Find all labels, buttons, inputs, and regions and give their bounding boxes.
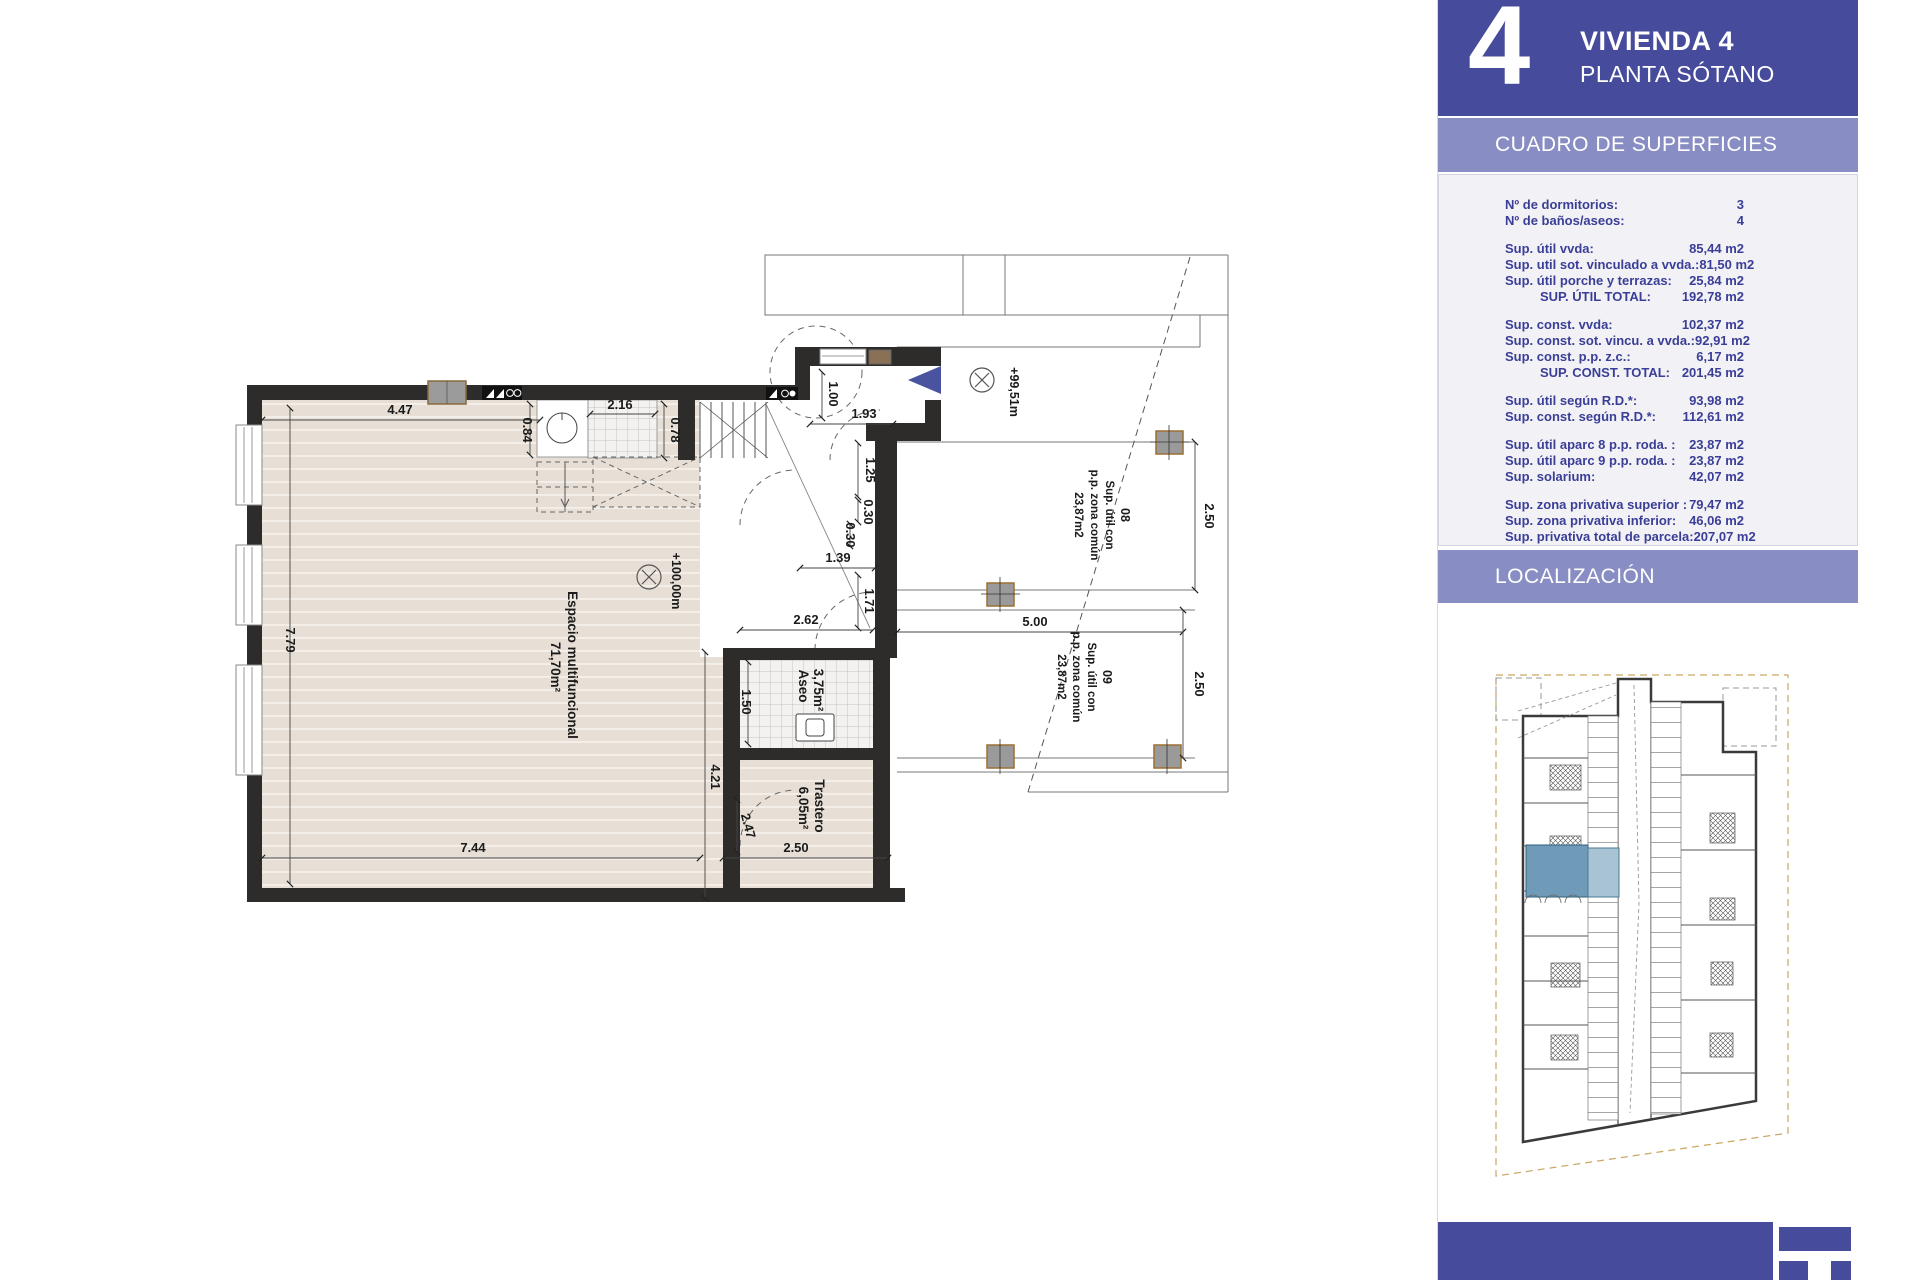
table-row: Sup. const. según R.D.*:112,61 m2: [1505, 409, 1744, 425]
highlighted-unit: [1526, 845, 1588, 897]
room-area-aseo: 3,75m²: [811, 669, 826, 712]
unit-title: VIVIENDA 4: [1580, 26, 1775, 57]
svg-text:2.50: 2.50: [1202, 503, 1217, 528]
table-row: Sup. útil vvda:85,44 m2: [1505, 241, 1744, 257]
svg-text:23,87m2: 23,87m2: [1055, 654, 1067, 699]
parking-stalls-left: [1588, 716, 1618, 1120]
svg-text:0.78: 0.78: [668, 417, 683, 442]
room-label-trastero: Trastero: [812, 779, 827, 832]
svg-text:0.30: 0.30: [843, 522, 858, 547]
entrance-arrow-icon: [908, 366, 941, 394]
table-row: Sup. zona privativa inferior:46,06 m2: [1505, 513, 1744, 529]
highlighted-unit-annex: [1588, 848, 1619, 897]
svg-text:1.39: 1.39: [825, 550, 850, 565]
svg-text:5.00: 5.00: [1022, 614, 1047, 629]
table-row-total: SUP. CONST. TOTAL:201,45 m2: [1505, 365, 1744, 381]
unit-number: 4: [1468, 0, 1530, 104]
level-label-main: +100,00m: [669, 553, 683, 610]
svg-text:08: 08: [1118, 508, 1132, 522]
site-plan-drawing: [1438, 603, 1858, 1222]
table-row: Sup. zona privativa superior :79,47 m2: [1505, 497, 1744, 513]
table-row: Sup. const. sot. vincu. a vvda.:92,91 m2: [1505, 333, 1744, 349]
footer-bar: [1438, 1222, 1773, 1280]
toilet-icon: [796, 714, 834, 741]
svg-text:0.84: 0.84: [520, 417, 535, 443]
svg-text:2.50: 2.50: [783, 840, 808, 855]
svg-text:0.30: 0.30: [861, 499, 876, 524]
unit-subtitle: PLANTA SÓTANO: [1580, 61, 1775, 88]
room-label-main: Espacio multifuncional: [565, 591, 580, 739]
unit-header: 4 VIVIENDA 4 PLANTA SÓTANO: [1438, 0, 1858, 116]
surfaces-table: Nº de dormitorios:3 Nº de baños/aseos:4 …: [1438, 174, 1858, 546]
table-row: Sup. const. vvda:102,37 m2: [1505, 317, 1744, 333]
table-row: Sup. útil porche y terrazas:25,84 m2: [1505, 273, 1744, 289]
floor-plan: +100,00m +99,51m: [0, 0, 1437, 1280]
level-label-entry: +99,51m: [1007, 367, 1021, 417]
svg-text:2.16: 2.16: [607, 397, 632, 412]
svg-text:1.50: 1.50: [739, 689, 754, 714]
info-sidebar: 4 VIVIENDA 4 PLANTA SÓTANO CUADRO DE SUP…: [1437, 0, 1857, 1280]
svg-text:p.p. zona común: p.p. zona común: [1088, 470, 1100, 561]
room-area-main: 71,70m²: [548, 642, 563, 693]
svg-text:4.47: 4.47: [387, 402, 412, 417]
table-row: Sup. útil según R.D.*:93,98 m2: [1505, 393, 1744, 409]
svg-text:1.93: 1.93: [851, 406, 876, 421]
room-area-trastero: 6,05m²: [796, 787, 811, 830]
svg-text:2.62: 2.62: [793, 612, 818, 627]
table-row: Sup. útil aparc 9 p.p. roda. :23,87 m2: [1505, 453, 1744, 469]
table-row: Nº de baños/aseos:4: [1505, 213, 1744, 229]
parking-stalls-right: [1651, 702, 1681, 1114]
svg-text:2.50: 2.50: [1192, 671, 1207, 696]
table-row: Sup. const. p.p. z.c.:6,17 m2: [1505, 349, 1744, 365]
surfaces-section-header: CUADRO DE SUPERFICIES: [1438, 118, 1858, 172]
table-row: Sup. útil aparc 8 p.p. roda. :23,87 m2: [1505, 437, 1744, 453]
table-row: Sup. solarium:42,07 m2: [1505, 469, 1744, 485]
svg-text:23,87m2: 23,87m2: [1072, 492, 1084, 537]
location-section-header: LOCALIZACIÓN: [1438, 550, 1858, 603]
svg-text:4.21: 4.21: [708, 764, 723, 789]
table-row: Nº de dormitorios:3: [1505, 197, 1744, 213]
brand-logo-icon: [1779, 1222, 1851, 1280]
parking-labels: 08 Sup. útil con p.p. zona común 23,87m2…: [1055, 470, 1132, 723]
svg-text:1.71: 1.71: [862, 588, 877, 613]
svg-text:p.p. zona común: p.p. zona común: [1070, 632, 1082, 723]
level-marker-icon: [970, 368, 994, 392]
plan-sheet: +100,00m +99,51m: [0, 0, 1920, 1280]
table-row-total: SUP. ÚTIL TOTAL:192,78 m2: [1505, 289, 1744, 305]
floor-plan-drawing: +100,00m +99,51m: [0, 0, 1437, 1280]
table-row: Sup. privativa total de parcela:207,07 m…: [1505, 529, 1744, 545]
svg-text:1.00: 1.00: [826, 381, 841, 406]
svg-text:09: 09: [1100, 670, 1114, 684]
svg-text:7.79: 7.79: [283, 627, 298, 652]
location-map: [1438, 603, 1858, 1222]
svg-text:7.44: 7.44: [460, 840, 486, 855]
table-row: Sup. util sot. vinculado a vvda.:81,50 m…: [1505, 257, 1744, 273]
svg-text:1.25: 1.25: [863, 457, 878, 482]
svg-text:Sup. útil con: Sup. útil con: [1103, 481, 1115, 550]
svg-text:Sup. útil con: Sup. útil con: [1085, 643, 1097, 712]
room-label-aseo: Aseo: [796, 669, 811, 702]
